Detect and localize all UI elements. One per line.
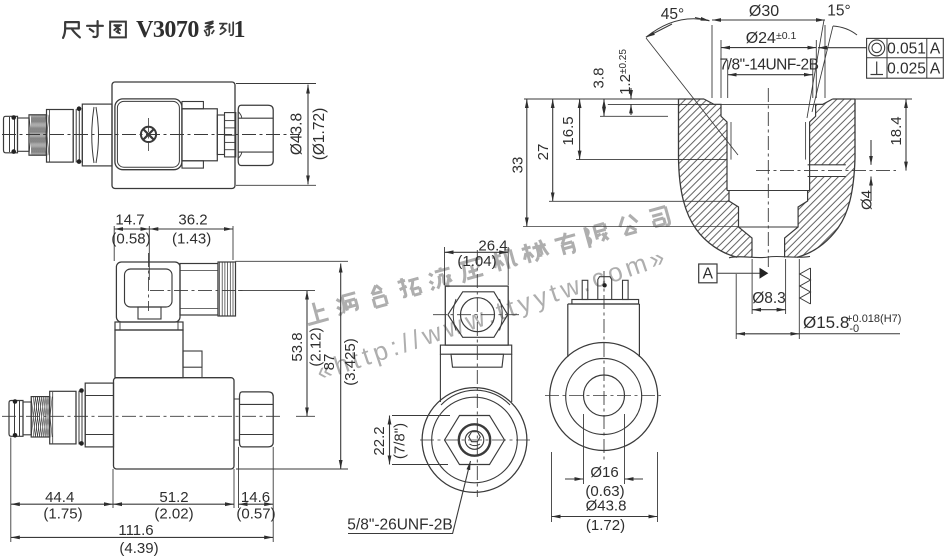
svg-text:0.051: 0.051 <box>887 41 926 58</box>
svg-text:14.6: 14.6 <box>241 489 270 506</box>
svg-text:Ø8.3: Ø8.3 <box>752 290 786 307</box>
svg-text:Ø24±0.1: Ø24±0.1 <box>746 30 797 47</box>
svg-text:0.025: 0.025 <box>887 60 926 77</box>
svg-text:(0.57): (0.57) <box>236 506 275 523</box>
svg-text:(7/8"): (7/8") <box>392 423 409 459</box>
svg-text:(1.75): (1.75) <box>43 506 82 523</box>
svg-text:26.4: 26.4 <box>478 237 507 254</box>
svg-text:27: 27 <box>535 144 552 161</box>
svg-text:15°: 15° <box>827 3 850 20</box>
svg-text:87: 87 <box>321 354 338 371</box>
svg-text:A: A <box>703 266 714 283</box>
svg-text:Ø15.8-0+0.018(H7): Ø15.8-0+0.018(H7) <box>803 313 901 335</box>
svg-text:(1.72): (1.72) <box>586 517 625 534</box>
svg-text:18.4: 18.4 <box>888 116 905 145</box>
svg-text:51.2: 51.2 <box>159 489 188 506</box>
svg-text:53.8: 53.8 <box>289 332 306 361</box>
svg-text:7/8"-14UNF-2B: 7/8"-14UNF-2B <box>720 57 819 74</box>
svg-text:22.2: 22.2 <box>371 426 388 455</box>
svg-text:A: A <box>930 60 941 77</box>
svg-text:16.5: 16.5 <box>560 116 577 145</box>
svg-text:3.8: 3.8 <box>591 68 608 89</box>
svg-text:(2.02): (2.02) <box>154 506 193 523</box>
svg-text:(0.58): (0.58) <box>111 231 150 248</box>
svg-text:Ø43.8: Ø43.8 <box>289 113 306 155</box>
svg-text:44.4: 44.4 <box>45 489 74 506</box>
svg-text:5/8"-26UNF-2B: 5/8"-26UNF-2B <box>347 517 452 534</box>
svg-text:Ø30: Ø30 <box>749 3 779 20</box>
svg-text:14.7: 14.7 <box>115 212 144 229</box>
svg-text:111.6: 111.6 <box>118 522 153 539</box>
svg-text:(1.04): (1.04) <box>457 253 496 270</box>
svg-text:1: 1 <box>234 17 246 43</box>
svg-text:Ø43.8: Ø43.8 <box>586 498 627 515</box>
svg-text:A: A <box>930 41 941 58</box>
svg-text:36.2: 36.2 <box>178 212 207 229</box>
svg-text:(4.39): (4.39) <box>119 540 158 557</box>
svg-text:33: 33 <box>510 157 527 174</box>
svg-text:V3070: V3070 <box>136 17 199 43</box>
svg-text:1.2±0.25: 1.2±0.25 <box>617 49 634 95</box>
svg-text:Ø16: Ø16 <box>590 464 618 481</box>
svg-text:(Ø1.72): (Ø1.72) <box>311 108 328 161</box>
svg-text:Ø4: Ø4 <box>859 190 876 210</box>
svg-text:(1.43): (1.43) <box>172 231 211 248</box>
svg-text:(3.425): (3.425) <box>342 338 359 386</box>
